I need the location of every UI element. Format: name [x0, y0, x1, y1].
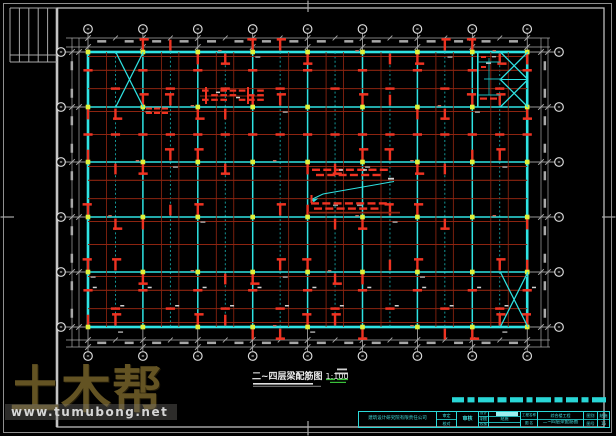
title-block-sign-values: 结施	[489, 412, 521, 427]
title-block-name-labels: 工程名称 图 名	[521, 412, 538, 427]
title-block-sign-labels: 设计 制图 校核	[479, 412, 489, 427]
cad-viewer-stage: 土木帮 www.tumubong.net 二~四层梁配筋图1:100 建筑设计研…	[0, 0, 616, 436]
title-block: 建筑设计研究院有限责任公司 审定 校对 审核 设计 制图 校核 结施 工程名称 …	[358, 411, 610, 428]
title-block-checks: 审定 校对	[437, 412, 457, 427]
highlight-field	[496, 412, 518, 416]
drawing-title: 二~四层梁配筋图1:100	[252, 369, 349, 382]
title-block-company: 建筑设计研究院有限责任公司	[359, 412, 437, 427]
title-block-stamp: 审核	[457, 412, 479, 427]
title-block-name-values: 综合楼工程 二~四层梁配筋图	[538, 412, 584, 427]
drawing-title-text: 二~四层梁配筋图	[252, 372, 323, 382]
watermark-url: www.tumubong.net	[11, 405, 168, 419]
drawing-scale: 1:100	[326, 372, 349, 381]
title-block-no-values: 结施 15	[597, 412, 609, 427]
title-block-no-labels: 图别 图号	[584, 412, 597, 427]
